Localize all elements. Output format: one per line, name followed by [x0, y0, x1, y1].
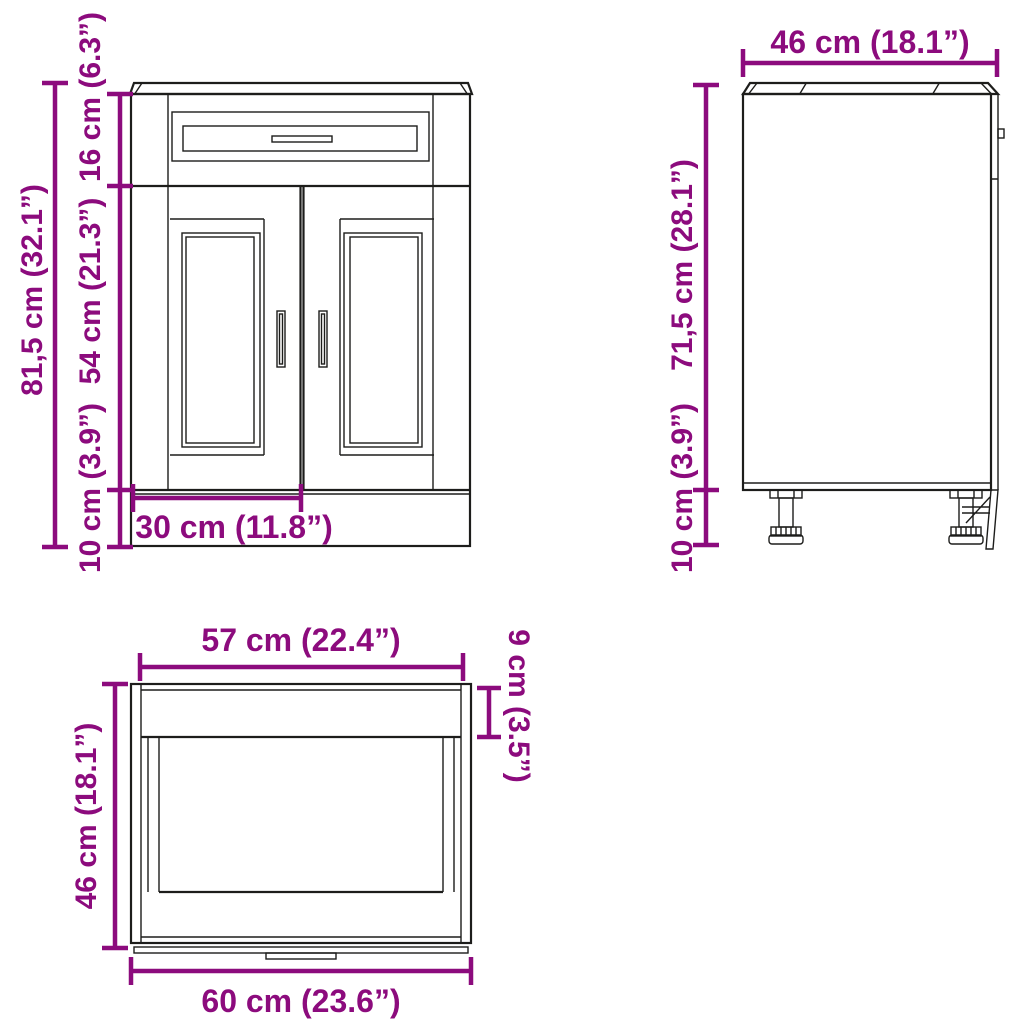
dimension-diagram: 81,5 cm (32.1”) 16 cm (6.3”) 54 cm (21.3…: [0, 0, 1024, 1024]
front-countertop: [130, 83, 472, 94]
front-right-door-handle: [319, 311, 327, 367]
side-right-foot: [949, 490, 983, 544]
dim-side-feet-height: 10 cm (3.9”): [666, 403, 699, 573]
side-plinth-clip: [962, 497, 990, 523]
side-drawer-handle: [998, 129, 1004, 138]
dim-top-depth: 46 cm (18.1”): [70, 723, 103, 910]
dim-front-total-height: 81,5 cm (32.1”): [16, 184, 49, 396]
side-cabinet-body: [743, 94, 991, 490]
diagram-canvas: 81,5 cm (32.1”) 16 cm (6.3”) 54 cm (21.3…: [0, 0, 1024, 1024]
dim-front-door-height: 54 cm (21.3”): [74, 198, 107, 385]
top-handle: [266, 953, 336, 959]
dim-top-front-rail-depth: 9 cm (3.5”): [502, 629, 535, 782]
dim-front-drawer-height: 16 cm (6.3”): [74, 12, 107, 182]
dim-front-plinth-height: 10 cm (3.9”): [74, 403, 107, 573]
dim-top-inner-width: 57 cm (22.4”): [201, 622, 400, 658]
side-countertop: [743, 83, 998, 94]
side-view-drawing: [743, 83, 1004, 549]
dim-front-door-width: 30 cm (11.8”): [135, 509, 332, 545]
top-door-front-edge: [134, 947, 468, 953]
dim-top-total-width: 60 cm (23.6”): [201, 983, 400, 1019]
dim-side-body-height: 71,5 cm (28.1”): [666, 159, 699, 371]
side-left-foot: [769, 490, 803, 544]
front-view-dimensions: 81,5 cm (32.1”) 16 cm (6.3”) 54 cm (21.3…: [16, 12, 333, 573]
top-cabinet-outline: [131, 684, 471, 943]
dim-side-depth: 46 cm (18.1”): [770, 24, 969, 60]
front-drawer: [172, 112, 429, 161]
top-view-drawing: [131, 684, 471, 959]
front-doors: [170, 186, 434, 490]
front-left-door-handle: [277, 311, 285, 367]
front-drawer-handle: [272, 136, 332, 142]
front-view-drawing: [130, 83, 472, 546]
